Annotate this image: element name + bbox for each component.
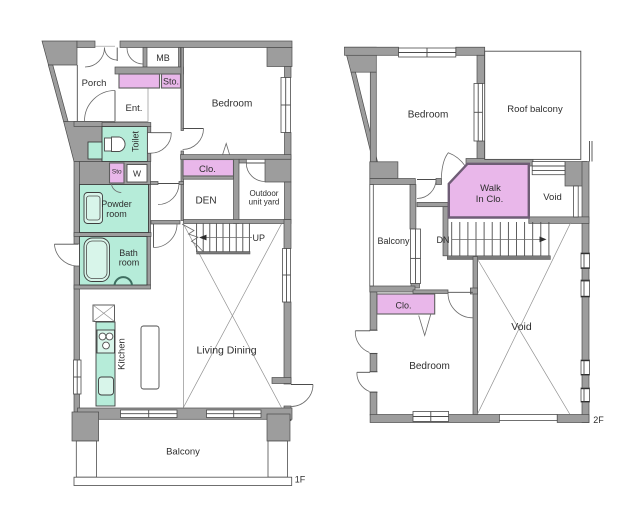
svg-text:Toilet: Toilet [131,130,141,152]
svg-text:Bedroom: Bedroom [408,110,449,121]
svg-text:DN: DN [437,235,450,245]
svg-text:Kitchen: Kitchen [117,338,128,370]
svg-text:Ent.: Ent. [126,103,143,114]
svg-text:In Clo.: In Clo. [476,194,503,205]
svg-text:Void: Void [511,321,532,333]
svg-text:MB: MB [156,53,170,63]
svg-text:Bedroom: Bedroom [409,361,450,372]
svg-text:Clo.: Clo. [395,301,411,311]
svg-text:Walk: Walk [480,183,501,194]
svg-text:Sto: Sto [112,169,122,176]
svg-text:Balcony: Balcony [377,236,410,246]
svg-text:Void: Void [543,192,562,203]
svg-text:Powder: Powder [101,199,132,209]
svg-text:2F: 2F [593,415,604,425]
svg-text:Roof balcony: Roof balcony [507,104,563,115]
svg-text:Balcony: Balcony [166,447,200,458]
svg-text:room: room [119,258,140,268]
svg-text:DEN: DEN [195,196,216,207]
svg-text:Living Dining: Living Dining [196,345,256,357]
svg-text:Bath: Bath [119,248,138,258]
svg-text:Porch: Porch [82,78,107,89]
svg-text:Clo.: Clo. [199,164,216,175]
svg-text:W: W [133,169,141,179]
svg-text:unit yard: unit yard [249,198,280,207]
svg-text:Sto.: Sto. [163,77,179,87]
svg-text:room: room [106,209,127,219]
svg-text:Bedroom: Bedroom [212,99,253,110]
svg-text:UP: UP [253,233,266,243]
svg-text:1F: 1F [295,475,306,485]
